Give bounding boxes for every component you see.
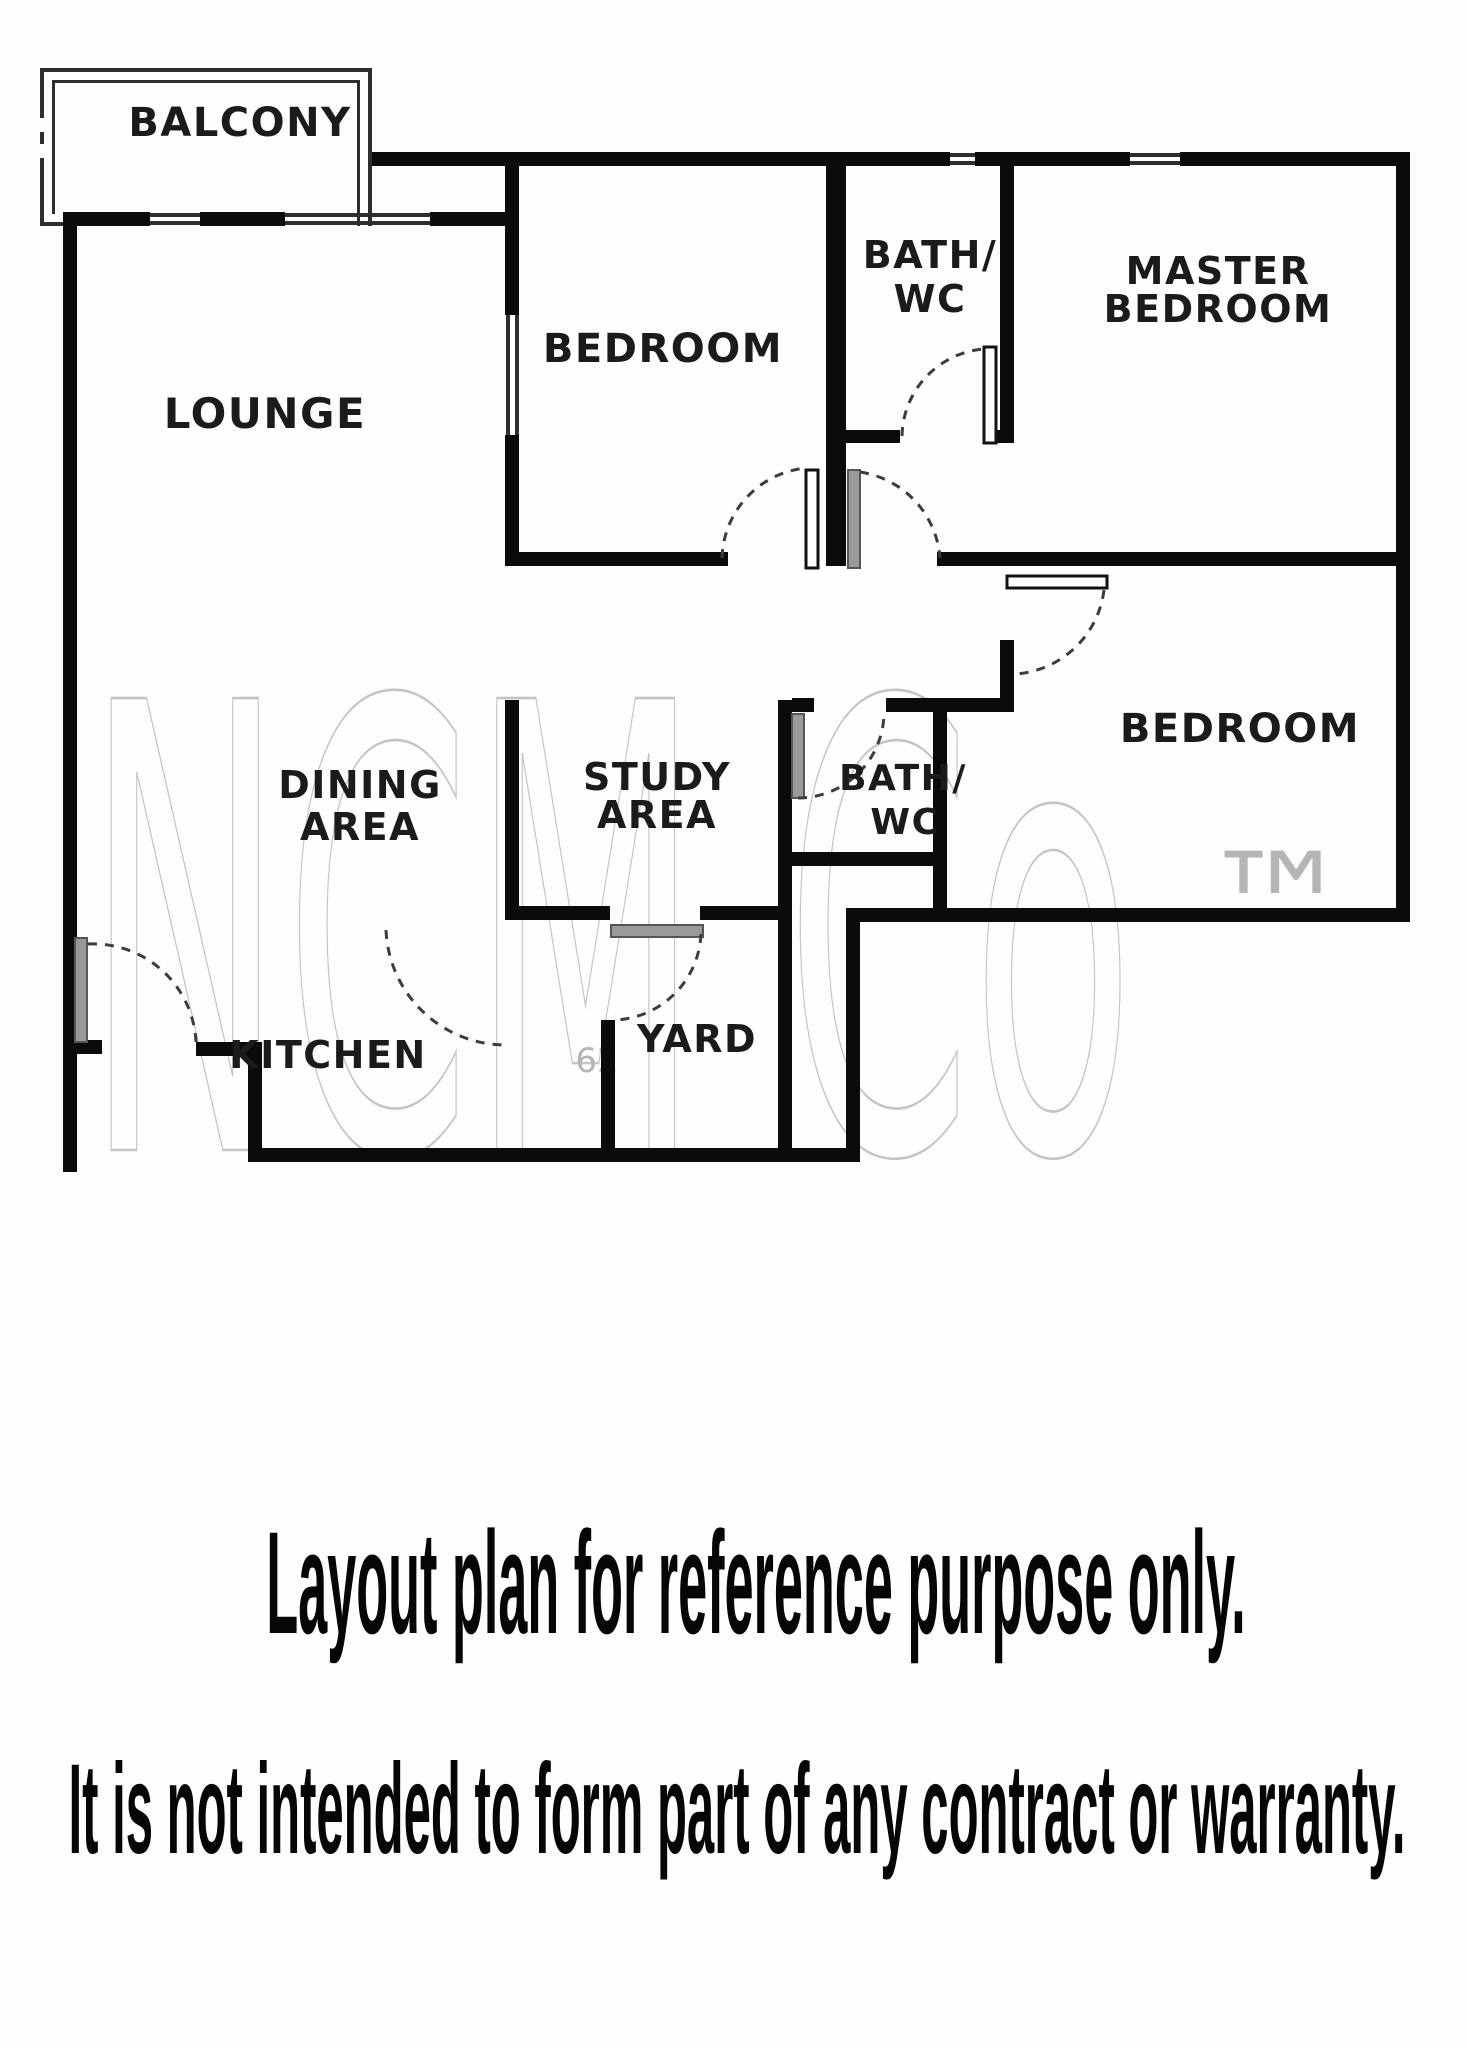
hall-door-leaf xyxy=(848,470,860,568)
room-label-lounge: LOUNGE xyxy=(164,389,366,438)
room-label-dining-area: DINING xyxy=(278,763,442,807)
room-label-bath-wc-top: WC xyxy=(894,277,967,321)
room-label-bedroom-right: BEDROOM xyxy=(1120,706,1360,752)
room-label-bath-wc-bottom: BATH/ xyxy=(839,758,967,799)
yard-door-leaf xyxy=(611,925,703,937)
watermark-brand: NCM Co xyxy=(85,574,1135,1296)
room-label-master-bedroom: BEDROOM xyxy=(1104,287,1333,331)
bath-top-door-leaf xyxy=(984,347,996,443)
room-label-bath-wc-bottom: WC xyxy=(870,802,939,843)
room-label-balcony: BALCONY xyxy=(128,100,351,146)
room-label-dining-area: AREA xyxy=(300,805,420,849)
bath-top-door-arc xyxy=(902,349,984,436)
watermark: NCM Co ™ 62 xyxy=(85,574,1353,1296)
room-label-study-area: AREA xyxy=(597,793,717,837)
floor-plan-page: NCM Co ™ 62 xyxy=(0,0,1469,2048)
caption-line1: Layout plan for reference purpose only. xyxy=(266,1503,1245,1665)
bedroom-top-door-arc xyxy=(722,468,806,558)
bath-bottom-door-leaf xyxy=(792,714,804,798)
room-label-bath-wc-top: BATH/ xyxy=(863,233,998,277)
floor-plan: NCM Co ™ 62 xyxy=(0,0,1469,2048)
caption-line2: It is not intended to form part of any c… xyxy=(69,1737,1406,1881)
room-label-bedroom-top: BEDROOM xyxy=(543,326,783,372)
entry-door-leaf xyxy=(75,938,87,1042)
balcony-railing xyxy=(36,68,372,226)
room-label-yard: YARD xyxy=(636,1017,757,1061)
bedroom-top-door-leaf xyxy=(806,470,818,568)
captions: Layout plan for reference purpose only. … xyxy=(69,1503,1406,1881)
room-label-kitchen: KITCHEN xyxy=(229,1033,426,1077)
bedroom-right-door-leaf xyxy=(1007,576,1107,588)
hall-door-arc xyxy=(860,472,940,558)
